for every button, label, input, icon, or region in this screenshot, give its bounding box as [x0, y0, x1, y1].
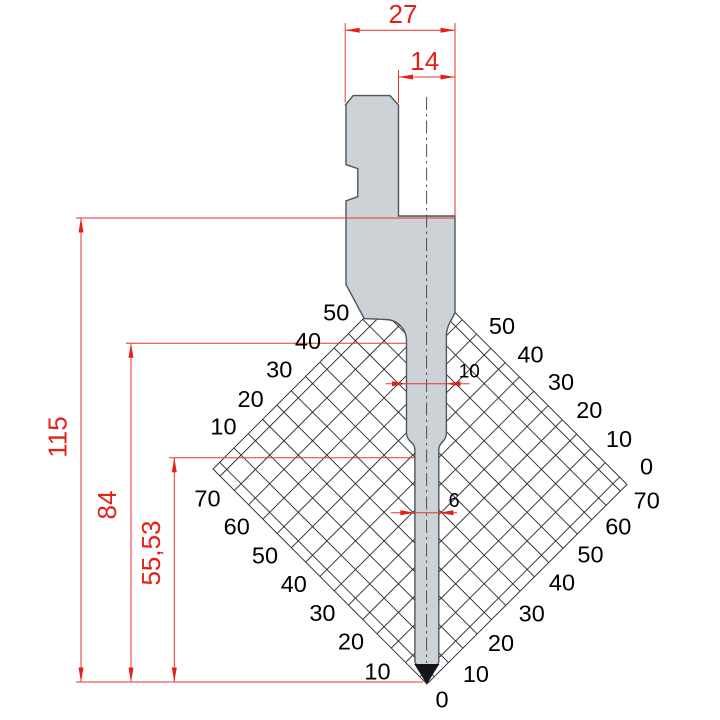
svg-text:10: 10 [459, 362, 480, 383]
svg-text:40: 40 [549, 569, 575, 595]
svg-text:0: 0 [640, 454, 653, 480]
svg-text:40: 40 [281, 571, 307, 597]
svg-text:50: 50 [489, 313, 515, 339]
svg-text:10: 10 [364, 658, 390, 684]
svg-text:30: 30 [548, 369, 574, 395]
svg-text:84: 84 [92, 491, 122, 520]
svg-text:10: 10 [463, 661, 489, 687]
svg-text:27: 27 [389, 0, 418, 29]
svg-text:115: 115 [43, 416, 73, 457]
svg-text:40: 40 [517, 341, 543, 367]
svg-text:50: 50 [577, 541, 603, 567]
svg-text:6: 6 [448, 490, 459, 512]
svg-text:14: 14 [410, 46, 439, 76]
svg-text:40: 40 [295, 328, 321, 354]
svg-text:70: 70 [634, 487, 660, 513]
svg-text:20: 20 [238, 386, 264, 412]
svg-text:60: 60 [605, 513, 631, 539]
svg-text:30: 30 [519, 600, 545, 626]
svg-text:20: 20 [488, 630, 514, 656]
svg-text:70: 70 [194, 485, 220, 511]
svg-text:10: 10 [210, 413, 236, 439]
svg-text:10: 10 [606, 426, 632, 452]
svg-text:20: 20 [576, 397, 602, 423]
svg-text:0: 0 [435, 686, 448, 712]
svg-text:50: 50 [252, 542, 278, 568]
svg-text:50: 50 [323, 299, 349, 325]
svg-text:55,53: 55,53 [136, 520, 166, 585]
svg-text:30: 30 [266, 357, 292, 383]
svg-text:30: 30 [309, 600, 335, 626]
svg-text:60: 60 [224, 513, 250, 539]
svg-text:20: 20 [338, 628, 364, 654]
